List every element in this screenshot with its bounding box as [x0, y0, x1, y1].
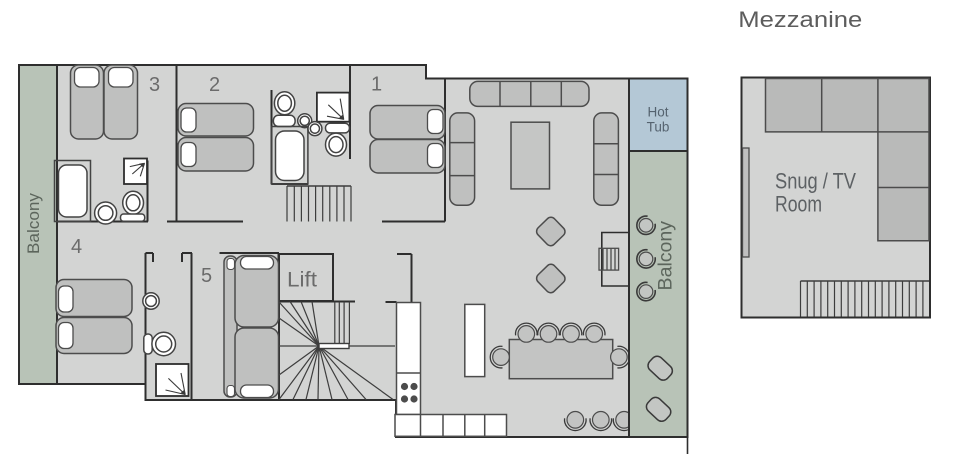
- svg-text:Lift: Lift: [287, 269, 317, 292]
- svg-text:1: 1: [371, 74, 382, 96]
- svg-text:Balcony: Balcony: [24, 193, 43, 254]
- svg-text:Hot: Hot: [647, 104, 668, 119]
- svg-text:Room: Room: [775, 192, 822, 217]
- svg-text:5: 5: [201, 265, 212, 287]
- svg-text:3: 3: [149, 74, 160, 96]
- svg-text:Tub: Tub: [647, 120, 670, 135]
- svg-text:Mezzanine: Mezzanine: [738, 7, 862, 32]
- svg-text:2: 2: [209, 74, 220, 96]
- svg-text:Balcony: Balcony: [656, 220, 677, 290]
- svg-text:4: 4: [71, 236, 82, 258]
- svg-text:Snug / TV: Snug / TV: [775, 168, 856, 193]
